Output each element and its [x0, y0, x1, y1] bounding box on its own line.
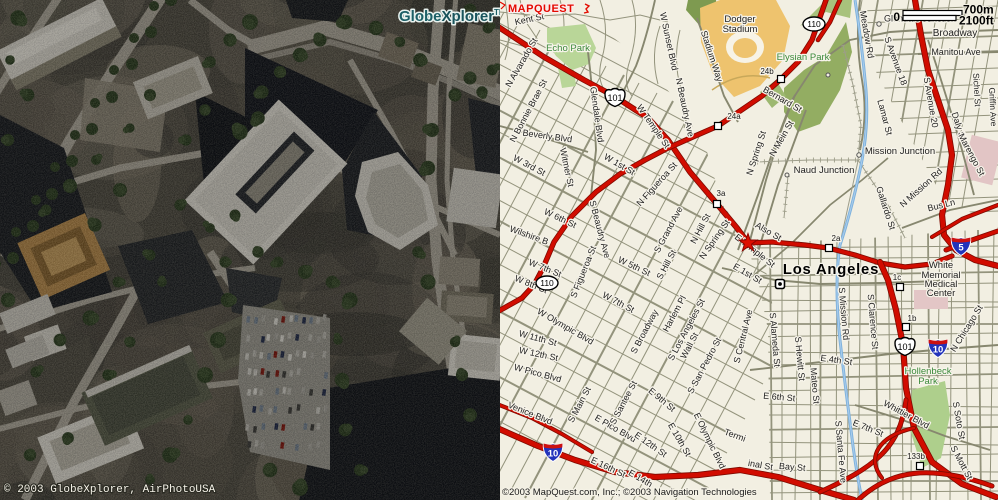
svg-text:Stadium: Stadium — [723, 24, 758, 35]
svg-text:2a: 2a — [832, 234, 841, 243]
svg-text:24a: 24a — [727, 112, 741, 121]
svg-text:5: 5 — [958, 243, 964, 254]
svg-text:Broadway: Broadway — [933, 28, 977, 39]
svg-text:Mission Junction: Mission Junction — [865, 146, 935, 157]
svg-text:101: 101 — [607, 93, 622, 103]
svg-text:GlobeXplorerTM: GlobeXplorerTM — [399, 8, 506, 25]
svg-text:10: 10 — [548, 449, 559, 460]
svg-text:Echo Park: Echo Park — [546, 43, 590, 54]
svg-text:© 2003 GlobeXplorer, AirPhotoU: © 2003 GlobeXplorer, AirPhotoUSA — [4, 484, 216, 496]
svg-text:2100ft: 2100ft — [959, 14, 994, 28]
svg-text:133b: 133b — [907, 452, 925, 461]
svg-text:Sichel St: Sichel St — [971, 73, 983, 108]
svg-text:110: 110 — [540, 278, 554, 288]
svg-text:1b: 1b — [908, 314, 917, 323]
svg-text:101: 101 — [897, 342, 912, 352]
svg-text:Naud Junction: Naud Junction — [794, 165, 855, 176]
svg-text:1c: 1c — [893, 273, 901, 282]
svg-text:0: 0 — [893, 10, 900, 24]
svg-text:110: 110 — [807, 19, 821, 29]
svg-text:10: 10 — [933, 345, 944, 356]
svg-text:Elysian Park: Elysian Park — [777, 52, 830, 63]
svg-text:3a: 3a — [717, 189, 726, 198]
svg-text:24b: 24b — [760, 67, 774, 76]
svg-text:Los Angeles: Los Angeles — [783, 262, 879, 278]
svg-text:Manitou Ave: Manitou Ave — [931, 47, 980, 57]
svg-text:Park: Park — [918, 376, 938, 387]
svg-text:©2003 MapQuest.com, Inc.; ©200: ©2003 MapQuest.com, Inc.; ©2003 Navigati… — [502, 487, 757, 498]
svg-text:MAPQUEST: MAPQUEST — [508, 3, 574, 15]
svg-text:Center: Center — [927, 288, 956, 299]
